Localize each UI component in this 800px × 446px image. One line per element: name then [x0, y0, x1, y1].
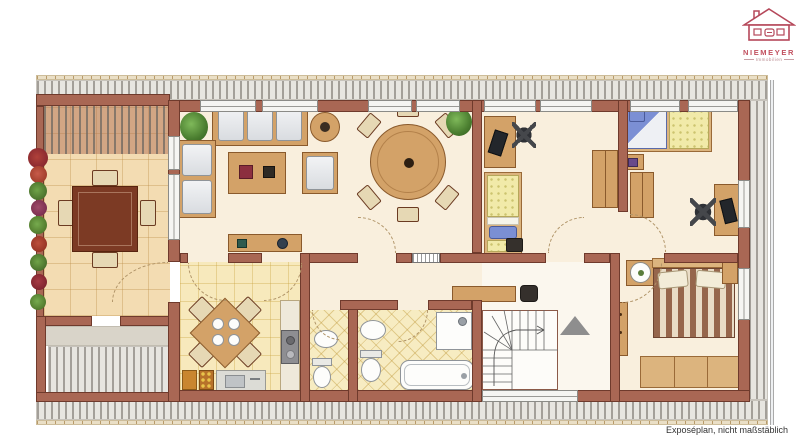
decor-object	[520, 285, 538, 302]
wall-hall	[396, 253, 412, 263]
window	[200, 100, 256, 112]
window	[262, 100, 318, 112]
sofa-cushion	[218, 107, 244, 141]
flower-icon	[31, 274, 47, 290]
laptop-icon	[719, 198, 737, 224]
plant-icon	[180, 112, 208, 142]
decor-object	[628, 158, 638, 167]
stove	[281, 330, 299, 364]
house-logo-icon	[742, 8, 796, 42]
wall-stair-bedroom	[610, 253, 620, 402]
kitchen-sink-unit	[216, 370, 266, 392]
window	[738, 180, 750, 228]
bath-toilet	[361, 358, 381, 382]
wc-toilet-tank	[312, 358, 332, 366]
decor-object	[404, 158, 414, 168]
logo-company-name: NIEMEYER	[738, 48, 800, 57]
decor-object	[506, 238, 523, 252]
wall-hall	[228, 253, 262, 263]
wall-kitchen-east	[300, 253, 310, 402]
wall-east	[738, 100, 750, 402]
wall-bath-north	[428, 300, 472, 310]
wall-hall	[584, 253, 610, 263]
plant-icon	[446, 108, 472, 136]
faucet-icon	[250, 378, 260, 380]
plate	[212, 334, 224, 346]
plant-icon	[29, 182, 47, 200]
company-logo: NIEMEYER Immobilien	[738, 8, 800, 62]
decor-object	[263, 166, 275, 178]
deck-band-right	[748, 100, 768, 400]
terrace-mid-wall-right	[120, 316, 170, 326]
wall-south	[168, 390, 750, 402]
window	[484, 100, 536, 112]
decor-object	[237, 239, 247, 248]
shower-head-icon	[458, 317, 467, 326]
plant-icon	[29, 216, 47, 234]
window	[368, 100, 412, 112]
window	[630, 100, 680, 112]
side-table-round	[310, 112, 340, 142]
plate	[212, 318, 224, 330]
floorplan-page: NIEMEYER Immobilien Exposéplan, nicht ma…	[0, 0, 800, 446]
wall-wc-bath	[348, 300, 358, 402]
flower-icon	[30, 166, 47, 183]
bedroom2-wardrobe	[630, 172, 654, 218]
dining-table-round	[370, 124, 446, 200]
window	[738, 268, 750, 320]
bed-pillow	[657, 269, 689, 289]
desk-chair-icon	[690, 198, 716, 226]
deck-band-bottom	[36, 400, 768, 420]
wall-bath-stairs	[472, 300, 482, 402]
basket	[199, 370, 214, 390]
bedroom2-blanket-yellow	[669, 107, 709, 149]
drain-icon	[461, 373, 467, 379]
sofa-cushion	[247, 107, 273, 141]
terrace-table	[72, 186, 138, 252]
deck-rail-bottom	[36, 420, 768, 425]
sofa-cushion	[276, 107, 302, 141]
wall-bath-north	[340, 300, 398, 310]
plate	[228, 318, 240, 330]
wall-hall	[440, 253, 546, 263]
plate	[228, 334, 240, 346]
window	[688, 100, 738, 112]
window	[168, 136, 180, 170]
flower-icon	[31, 200, 47, 216]
master-wardrobe	[640, 356, 740, 388]
wall-hall	[180, 253, 188, 263]
child-bed-blanket	[487, 175, 519, 217]
wc-toilet	[313, 366, 331, 388]
wall-child-bedroom	[618, 100, 628, 212]
terrace-chair	[140, 200, 156, 226]
decor-object	[320, 122, 330, 132]
balcony-landing	[44, 326, 170, 346]
flower-icon	[28, 148, 48, 168]
bed-sheet	[487, 217, 519, 225]
stairs-direction-arrow-icon	[560, 316, 590, 335]
radiator	[412, 253, 440, 263]
bath-sink	[360, 320, 386, 340]
child-wardrobe	[592, 150, 618, 208]
decor-object	[277, 238, 288, 249]
plant-icon	[30, 294, 46, 310]
deck-rail-right	[770, 80, 774, 425]
laptop-icon	[488, 129, 509, 156]
window	[416, 100, 460, 112]
bath-toilet-tank	[360, 350, 382, 358]
coffee-table	[228, 152, 286, 194]
terrace-plants	[26, 148, 52, 318]
wall-west-lower	[168, 302, 180, 402]
terrace-top-wall	[36, 94, 170, 106]
flower-icon	[31, 236, 47, 252]
wall-hall	[664, 253, 738, 263]
wall-dining-child	[472, 100, 482, 253]
logo-tagline: Immobilien	[738, 57, 800, 62]
dining-chair	[397, 207, 419, 222]
balcony-left-wall	[36, 316, 46, 402]
terrace-chair	[92, 252, 118, 268]
window	[540, 100, 592, 112]
sideboard	[228, 234, 302, 252]
window	[482, 390, 578, 402]
balcony-bottom-wall	[36, 392, 170, 402]
sofa-cushion	[182, 180, 212, 214]
balcony-decking	[48, 346, 170, 398]
terrace-chair	[92, 170, 118, 186]
bathtub	[400, 360, 474, 390]
nightstand	[722, 262, 738, 284]
decor-object	[239, 165, 253, 179]
armchair-cushion	[306, 156, 334, 190]
plan-caption: Exposéplan, nicht maßstäblich	[666, 425, 788, 435]
shower	[436, 312, 472, 350]
sink-bowl	[225, 375, 245, 388]
terrace-glass-door	[168, 174, 180, 240]
desk-chair-icon	[512, 122, 536, 148]
basket	[182, 370, 197, 390]
terrace-awning	[44, 106, 170, 154]
sofa-cushion	[182, 144, 212, 176]
staircase	[482, 310, 558, 390]
plant-icon	[30, 254, 47, 271]
wall-hall	[304, 253, 358, 263]
